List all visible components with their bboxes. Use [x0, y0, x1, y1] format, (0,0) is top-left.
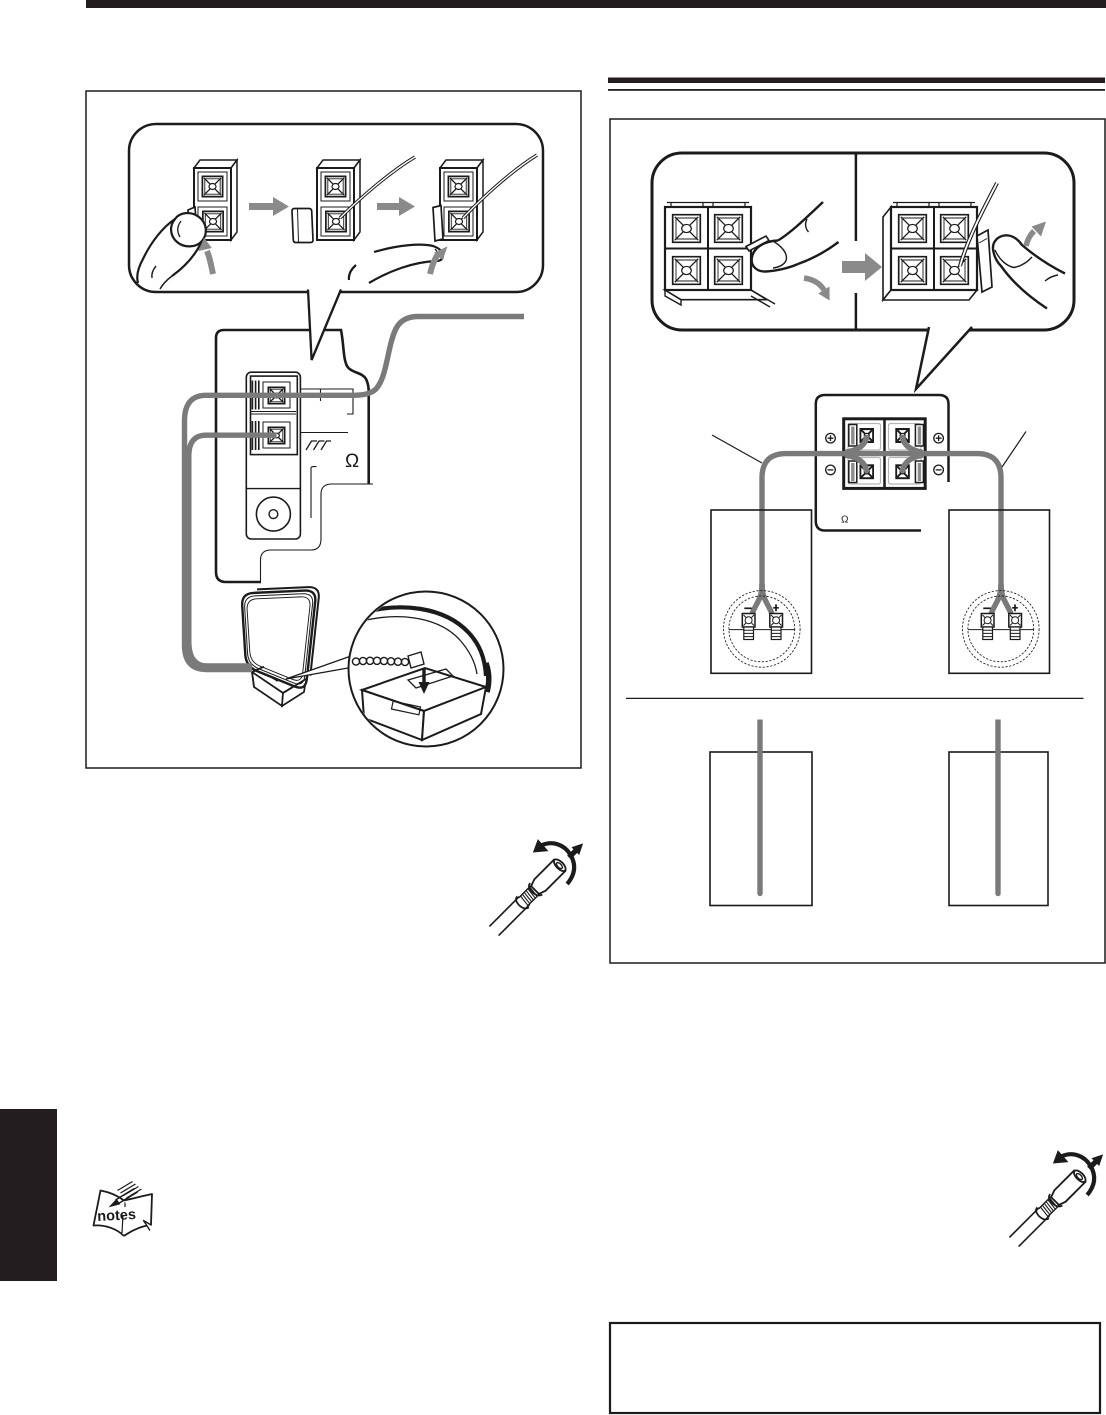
svg-text:notes: notes [97, 1207, 136, 1225]
svg-text:Ω: Ω [345, 451, 359, 472]
svg-text:Ω: Ω [841, 515, 849, 526]
